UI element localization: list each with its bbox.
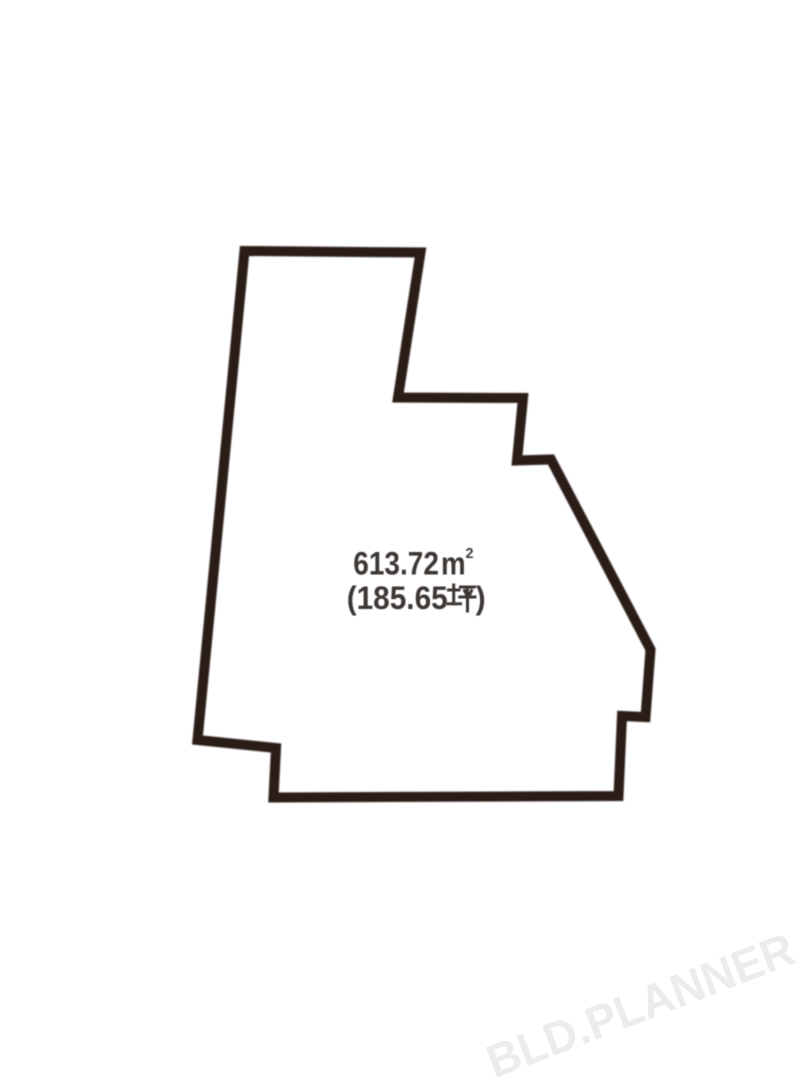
svg-text:(185.65: (185.65 [347,580,448,616]
svg-text:BLD.PLANNER: BLD.PLANNER [479,923,801,1080]
svg-text:): ) [476,580,486,616]
svg-text:2: 2 [466,545,474,562]
svg-text:613.72: 613.72 [353,545,439,581]
svg-text:m: m [441,545,466,581]
